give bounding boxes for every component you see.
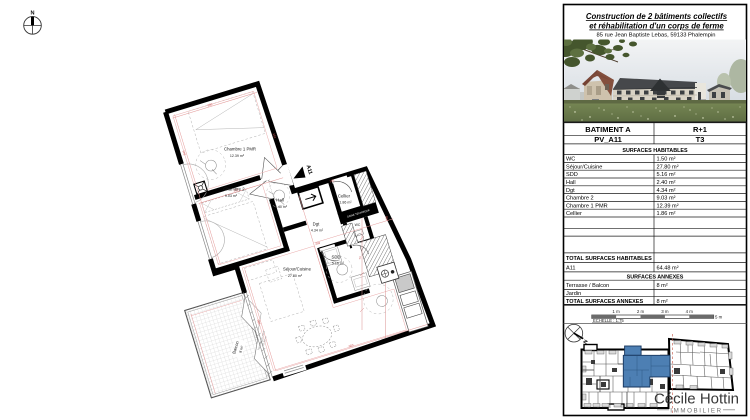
- svg-text:ECHELLE : 1:75: ECHELLE : 1:75: [593, 318, 624, 323]
- svg-text:WC: WC: [355, 223, 361, 227]
- svg-text:Hall: Hall: [566, 180, 576, 186]
- svg-text:4 m: 4 m: [686, 309, 694, 314]
- svg-text:Dgt: Dgt: [566, 188, 575, 194]
- svg-text:TOTAL SURFACES HABITABLES: TOTAL SURFACES HABITABLES: [566, 256, 652, 262]
- svg-text:Hall: Hall: [276, 198, 283, 203]
- svg-text:1 m: 1 m: [612, 309, 620, 314]
- svg-text:Terrasse / Balcon: Terrasse / Balcon: [566, 283, 609, 289]
- svg-text:4.34 m²: 4.34 m²: [311, 229, 324, 233]
- svg-text:PV_A11: PV_A11: [594, 135, 622, 144]
- svg-text:Chambre 2: Chambre 2: [566, 196, 594, 202]
- svg-text:298: 298: [385, 215, 389, 221]
- svg-text:IMMOBILIER: IMMOBILIER: [670, 408, 722, 415]
- svg-text:1.86 m²: 1.86 m²: [657, 211, 676, 217]
- svg-text:SURFACES ANNEXES: SURFACES ANNEXES: [627, 274, 684, 280]
- svg-text:9.03 m²: 9.03 m²: [657, 196, 676, 202]
- svg-text:Séjour/Cuisine: Séjour/Cuisine: [283, 267, 312, 272]
- svg-text:N: N: [30, 11, 34, 17]
- svg-text:4.34 m²: 4.34 m²: [657, 188, 676, 194]
- svg-text:64.48 m²: 64.48 m²: [657, 266, 679, 272]
- svg-text:73: 73: [358, 256, 362, 260]
- svg-text:3 m: 3 m: [661, 309, 669, 314]
- svg-text:T3: T3: [696, 135, 705, 144]
- svg-text:SDD: SDD: [331, 255, 340, 260]
- svg-text:Cellier: Cellier: [338, 194, 351, 199]
- svg-text:1.86 m²: 1.86 m²: [339, 201, 352, 205]
- svg-text:Construction de 2 bâtiments co: Construction de 2 bâtiments collectifs: [586, 12, 728, 21]
- svg-text:5 m: 5 m: [715, 315, 723, 320]
- svg-text:Cécile Hottin: Cécile Hottin: [654, 391, 739, 408]
- svg-text:2 m: 2 m: [637, 309, 645, 314]
- svg-text:12.39 m²: 12.39 m²: [657, 203, 679, 209]
- svg-text:12.39 m²: 12.39 m²: [230, 154, 245, 158]
- svg-text:8 m²: 8 m²: [657, 299, 668, 305]
- svg-text:85 rue Jean Baptiste Lebas, 59: 85 rue Jean Baptiste Lebas, 59133 Phalem…: [597, 33, 716, 39]
- svg-text:Chambre 1 PMR: Chambre 1 PMR: [566, 203, 608, 209]
- svg-text:2.40 m²: 2.40 m²: [275, 205, 288, 209]
- svg-text:Chambre 2: Chambre 2: [223, 187, 245, 192]
- svg-text:A11: A11: [566, 266, 576, 272]
- svg-text:5.16 m²: 5.16 m²: [332, 262, 345, 266]
- svg-text:Dgt: Dgt: [313, 222, 320, 227]
- svg-text:et réhabilitation d'un corps d: et réhabilitation d'un corps de ferme: [589, 22, 724, 31]
- svg-text:5.16 m²: 5.16 m²: [657, 172, 676, 178]
- svg-text:27.80 m²: 27.80 m²: [288, 274, 303, 278]
- svg-text:R+1: R+1: [693, 125, 707, 134]
- svg-text:SDD: SDD: [566, 172, 578, 178]
- svg-text:1.50 m²: 1.50 m²: [657, 157, 676, 163]
- svg-text:SURFACES HABITABLES: SURFACES HABITABLES: [622, 148, 688, 154]
- svg-text:Séjour/Cuisine: Séjour/Cuisine: [566, 164, 602, 170]
- svg-text:Cellier: Cellier: [566, 211, 582, 217]
- svg-text:WC: WC: [566, 157, 575, 163]
- svg-text:2.40 m²: 2.40 m²: [657, 180, 676, 186]
- svg-text:8 m²: 8 m²: [657, 283, 668, 289]
- svg-text:TOTAL SURFACES ANNEXES: TOTAL SURFACES ANNEXES: [566, 299, 643, 305]
- svg-text:27.80 m²: 27.80 m²: [657, 164, 679, 170]
- svg-text:Jardin: Jardin: [566, 291, 581, 297]
- svg-text:BATIMENT A: BATIMENT A: [585, 125, 631, 134]
- svg-text:9.03 m²: 9.03 m²: [225, 194, 238, 198]
- svg-text:Chambre 1 PMR: Chambre 1 PMR: [224, 147, 256, 152]
